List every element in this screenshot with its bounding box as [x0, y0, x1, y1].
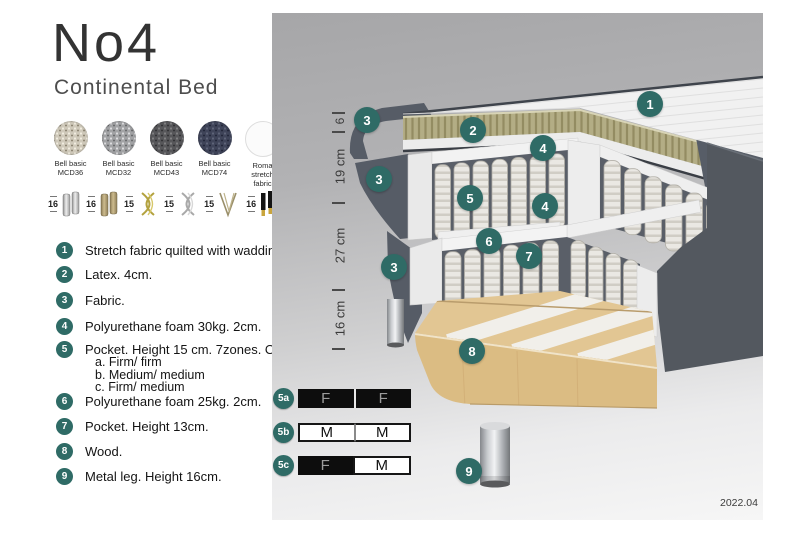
- firmness-cell: F: [298, 389, 356, 408]
- fabric-option: Bell basic MCD36: [50, 121, 91, 188]
- dimension-tick: [332, 202, 345, 204]
- diagram-marker-5: 5: [457, 185, 483, 211]
- cylinder-wood-leg-icon: [98, 186, 120, 222]
- diagram-marker-7: 7: [516, 243, 542, 269]
- leg-option: 15: [124, 186, 160, 222]
- fabric-code: MCD32: [106, 168, 131, 177]
- firmness-bar: M M: [298, 423, 411, 442]
- fabric-name: Bell basic: [102, 159, 134, 168]
- feature-number-badge: 1: [56, 242, 73, 259]
- feature-item: 1 Stretch fabric quilted with wadding.: [56, 242, 286, 259]
- diagram-marker-3a: 3: [354, 107, 380, 133]
- fabric-option: Bell basic MCD43: [146, 121, 187, 188]
- fabric-label: Bell basic MCD32: [102, 159, 134, 177]
- fabric-code: MCD74: [202, 168, 227, 177]
- feature-item: 8 Wood.: [56, 443, 122, 460]
- fabric-name: Bell basic: [150, 159, 182, 168]
- fabric-swatch-icon: [198, 121, 232, 155]
- leg-height: 16: [86, 194, 96, 214]
- diagram-marker-2: 2: [460, 117, 486, 143]
- hairpin-leg-icon: [216, 186, 242, 222]
- leg-height: 16: [48, 194, 58, 214]
- feature-item: 3 Fabric.: [56, 292, 125, 309]
- feature-text: Latex. 4cm.: [85, 266, 152, 283]
- firmness-badge: 5b: [273, 422, 294, 443]
- diagram-marker-4b: 4: [532, 193, 558, 219]
- leg-height: 15: [164, 194, 174, 214]
- fabric-label: Bell basic MCD43: [150, 159, 182, 177]
- firmness-bar: F M: [298, 456, 411, 475]
- fabric-option: Bell basic MCD74: [194, 121, 235, 188]
- leg-height: 15: [124, 194, 134, 214]
- feature-5-options: a. Firm/ firm b. Medium/ medium c. Firm/…: [95, 356, 205, 394]
- feature-item: 2 Latex. 4cm.: [56, 266, 152, 283]
- diagram-marker-9: 9: [456, 458, 482, 484]
- firmness-cell: F: [356, 389, 412, 408]
- feature-number-badge: 9: [56, 468, 73, 485]
- diagram-marker-6: 6: [476, 228, 502, 254]
- leg-options: 16 16 15 15: [48, 186, 276, 222]
- firmness-cell: M: [298, 423, 355, 442]
- feature-item: 4 Polyurethane foam 30kg. 2cm.: [56, 318, 261, 335]
- feature-number-badge: 8: [56, 443, 73, 460]
- diagram-marker-4a: 4: [530, 135, 556, 161]
- dimension-label: 19 cm: [333, 137, 348, 197]
- option-a: a. Firm/ firm: [95, 356, 205, 369]
- feature-item: 9 Metal leg. Height 16cm.: [56, 468, 222, 485]
- firmness-bar: F F: [298, 389, 411, 408]
- firmness-row-5c: 5c F M: [273, 455, 411, 476]
- leg-height: 16: [246, 194, 256, 214]
- fabric-swatch-icon: [54, 121, 88, 155]
- feature-item: 6 Polyurethane foam 25kg. 2cm.: [56, 393, 261, 410]
- firmness-badge: 5a: [273, 388, 294, 409]
- fabric-swatch-icon: [102, 121, 136, 155]
- diagram-marker-8: 8: [459, 338, 485, 364]
- feature-number-badge: 4: [56, 318, 73, 335]
- fabric-name: Bell basic: [54, 159, 86, 168]
- bed-cutaway-diagram: 6 19 cm 27 cm 16 cm 1 2 3 3 3 4 4 5 6 7 …: [272, 13, 763, 520]
- firmness-row-5b: 5b M M: [273, 422, 411, 443]
- feature-text: Wood.: [85, 443, 122, 460]
- fabric-code: MCD43: [154, 168, 179, 177]
- feature-text: Stretch fabric quilted with wadding.: [85, 242, 286, 259]
- dimension-label: 16 cm: [333, 289, 348, 349]
- leg-option: 15: [164, 186, 200, 222]
- feature-text: Fabric.: [85, 292, 125, 309]
- leg-option: 16: [86, 186, 120, 222]
- firmness-badge: 5c: [273, 455, 294, 476]
- feature-number-badge: 3: [56, 292, 73, 309]
- twisted-silver-leg-icon: [176, 186, 200, 222]
- fabric-swatch-icon: [150, 121, 184, 155]
- cylinder-chrome-leg-icon: [60, 186, 82, 222]
- fabric-label: Bell basic MCD74: [198, 159, 230, 177]
- feature-number-badge: 7: [56, 418, 73, 435]
- fabric-name: Roma: [252, 161, 272, 170]
- twisted-gold-leg-icon: [136, 186, 160, 222]
- feature-item: 7 Pocket. Height 13cm.: [56, 418, 209, 435]
- feature-number-badge: 5: [56, 341, 73, 358]
- fabric-name: Bell basic: [198, 159, 230, 168]
- page-subtitle: Continental Bed: [54, 76, 218, 100]
- page-title: No4: [52, 16, 160, 70]
- feature-text: Polyurethane foam 25kg. 2cm.: [85, 393, 261, 410]
- firmness-cell: F: [298, 456, 353, 475]
- leg-option: 16: [48, 186, 82, 222]
- fabric-swatches: Bell basic MCD36 Bell basic MCD32 Bell b…: [50, 121, 283, 188]
- version-stamp: 2022.04: [720, 497, 758, 509]
- diagram-marker-3b: 3: [366, 166, 392, 192]
- diagram-marker-1: 1: [637, 91, 663, 117]
- firmness-cell: M: [355, 423, 412, 442]
- firmness-row-5a: 5a F F: [273, 388, 411, 409]
- firmness-cell: M: [353, 456, 412, 475]
- fabric-option: Bell basic MCD32: [98, 121, 139, 188]
- feature-text: Pocket. Height 13cm.: [85, 418, 209, 435]
- leg-height: 15: [204, 194, 214, 214]
- feature-text: Polyurethane foam 30kg. 2cm.: [85, 318, 261, 335]
- dimension-label: 27 cm: [333, 216, 348, 276]
- leg-option: 15: [204, 186, 242, 222]
- product-sheet: { "header": { "title": "No4", "subtitle"…: [0, 0, 800, 533]
- fabric-label: Bell basic MCD36: [54, 159, 86, 177]
- feature-text: Metal leg. Height 16cm.: [85, 468, 222, 485]
- feature-number-badge: 2: [56, 266, 73, 283]
- feature-number-badge: 6: [56, 393, 73, 410]
- fabric-code: MCD36: [58, 168, 83, 177]
- option-c: c. Firm/ medium: [95, 381, 205, 394]
- diagram-marker-3c: 3: [381, 254, 407, 280]
